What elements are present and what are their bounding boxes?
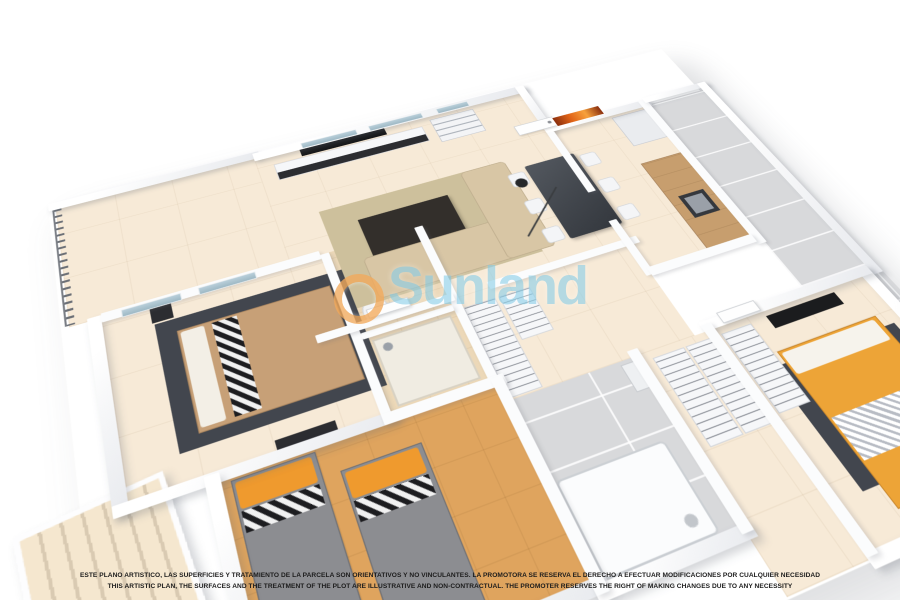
- shower-head-icon: [382, 341, 395, 352]
- watermark: Sunland: [334, 258, 587, 324]
- sunland-ring-icon: [334, 274, 384, 324]
- watermark-text: Sunland: [388, 258, 587, 315]
- disclaimer-line-english: THIS ARTISTIC PLAN, THE SURFACES AND THE…: [0, 583, 900, 590]
- door-handle-icon: [547, 120, 552, 123]
- disclaimer-line-spanish: ESTE PLANO ARTISTICO, LAS SUPERFICIES Y …: [0, 572, 900, 579]
- floorplan-screenshot: Sunland ESTE PLANO ARTISTICO, LAS SUPERF…: [0, 0, 900, 600]
- shower-drain-icon: [682, 512, 702, 530]
- disclaimer: ESTE PLANO ARTISTICO, LAS SUPERFICIES Y …: [0, 572, 900, 594]
